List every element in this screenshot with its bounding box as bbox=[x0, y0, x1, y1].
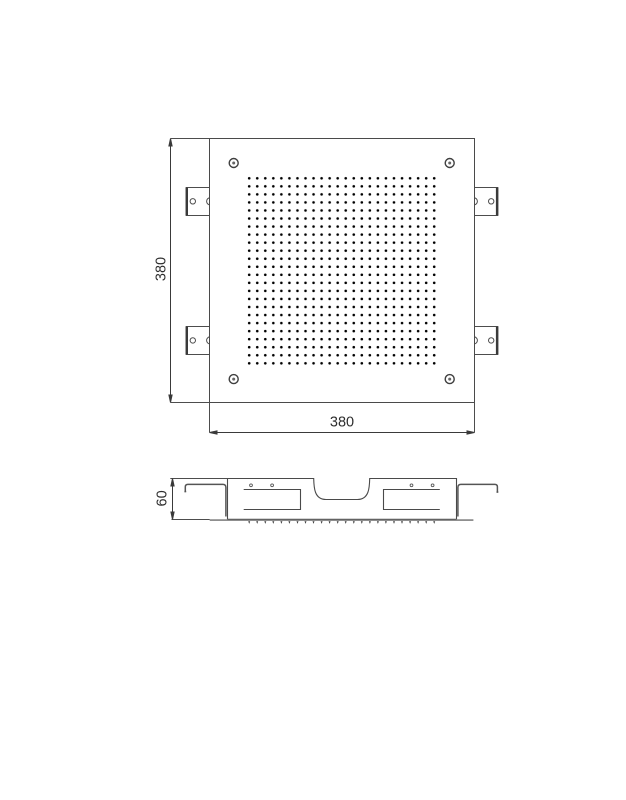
svg-text:380: 380 bbox=[330, 415, 354, 431]
svg-text:60: 60 bbox=[155, 490, 171, 506]
svg-text:380: 380 bbox=[153, 257, 169, 281]
